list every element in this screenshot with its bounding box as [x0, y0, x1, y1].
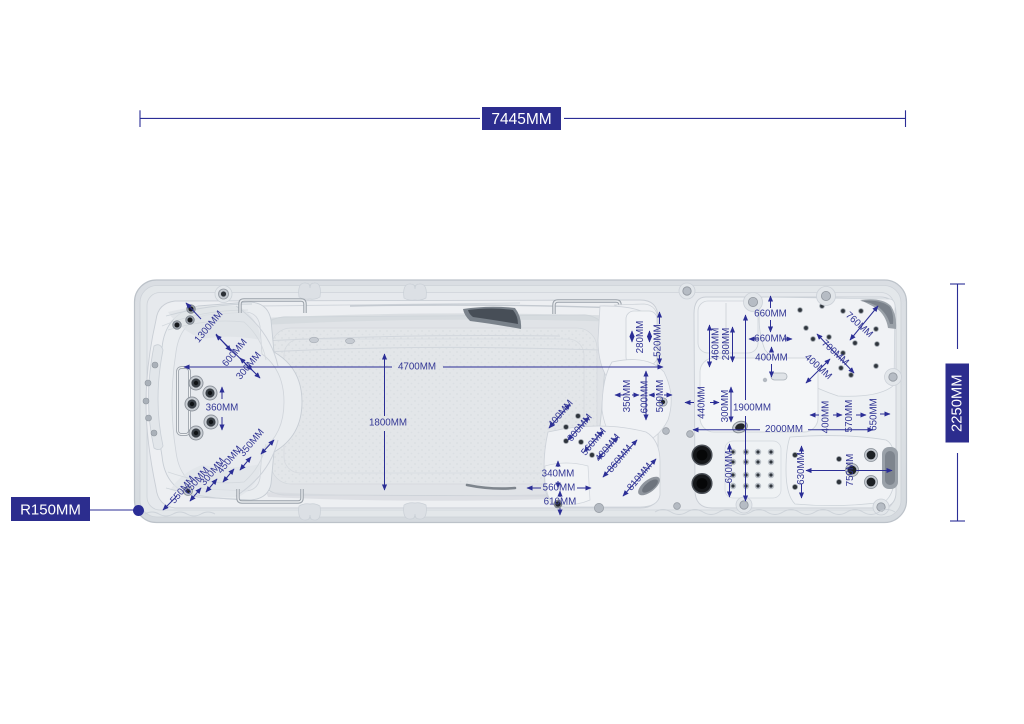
svg-text:400MM: 400MM: [755, 353, 788, 364]
svg-text:1800MM: 1800MM: [369, 418, 407, 429]
svg-text:300MM: 300MM: [720, 390, 731, 423]
svg-text:360MM: 360MM: [206, 403, 239, 414]
svg-text:340MM: 340MM: [542, 469, 575, 480]
svg-text:560MM: 560MM: [543, 483, 576, 494]
svg-text:460MM: 460MM: [711, 328, 722, 361]
svg-text:610MM: 610MM: [544, 497, 577, 508]
svg-text:660MM: 660MM: [754, 309, 787, 320]
svg-text:350MM: 350MM: [622, 380, 633, 413]
svg-text:280MM: 280MM: [721, 328, 732, 361]
svg-text:2250MM: 2250MM: [950, 374, 966, 432]
svg-text:570MM: 570MM: [844, 400, 855, 433]
svg-text:7445MM: 7445MM: [491, 111, 551, 128]
svg-text:4700MM: 4700MM: [398, 362, 436, 373]
svg-text:660MM: 660MM: [754, 334, 787, 345]
svg-text:2000MM: 2000MM: [765, 424, 803, 435]
svg-text:280MM: 280MM: [635, 321, 646, 354]
svg-text:600MM: 600MM: [640, 381, 651, 414]
svg-text:R150MM: R150MM: [20, 502, 81, 519]
svg-text:630MM: 630MM: [796, 452, 807, 485]
svg-text:750MM: 750MM: [845, 454, 856, 487]
svg-text:400MM: 400MM: [821, 401, 832, 434]
svg-text:650MM: 650MM: [869, 398, 880, 431]
svg-text:600MM: 600MM: [724, 451, 735, 484]
svg-text:500MM: 500MM: [655, 380, 666, 413]
svg-text:440MM: 440MM: [697, 386, 708, 419]
svg-text:520MM: 520MM: [653, 324, 664, 357]
svg-text:1900MM: 1900MM: [733, 403, 771, 414]
